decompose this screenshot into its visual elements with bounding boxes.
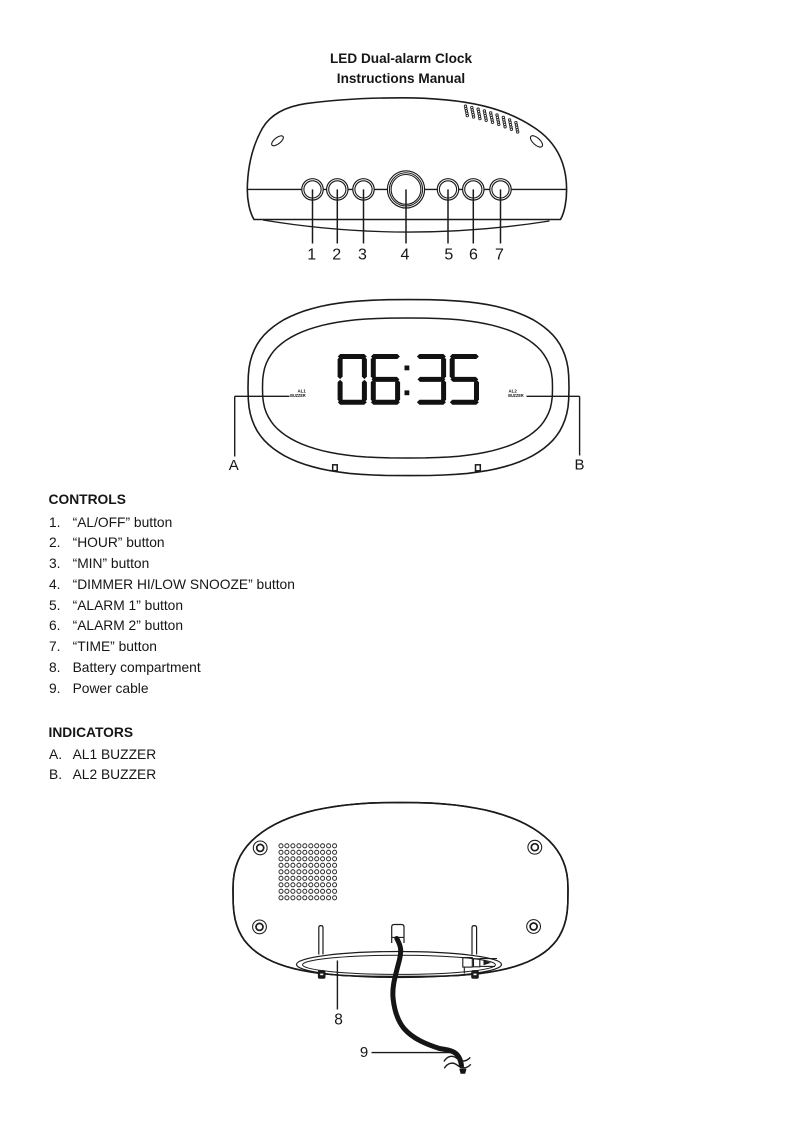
svg-text:9: 9 bbox=[360, 1044, 368, 1061]
svg-text:3: 3 bbox=[358, 247, 367, 264]
svg-text:A: A bbox=[229, 457, 239, 474]
svg-text:2: 2 bbox=[332, 247, 341, 264]
svg-text:8: 8 bbox=[334, 1012, 343, 1029]
svg-text:B: B bbox=[574, 457, 584, 474]
svg-text:6: 6 bbox=[469, 247, 478, 264]
svg-text:5: 5 bbox=[444, 247, 453, 264]
svg-text:4: 4 bbox=[401, 247, 410, 264]
svg-text:BUZZER: BUZZER bbox=[508, 393, 524, 398]
svg-text:7: 7 bbox=[495, 247, 504, 264]
svg-text:1: 1 bbox=[307, 247, 316, 264]
svg-text:BUZZER: BUZZER bbox=[290, 393, 306, 398]
